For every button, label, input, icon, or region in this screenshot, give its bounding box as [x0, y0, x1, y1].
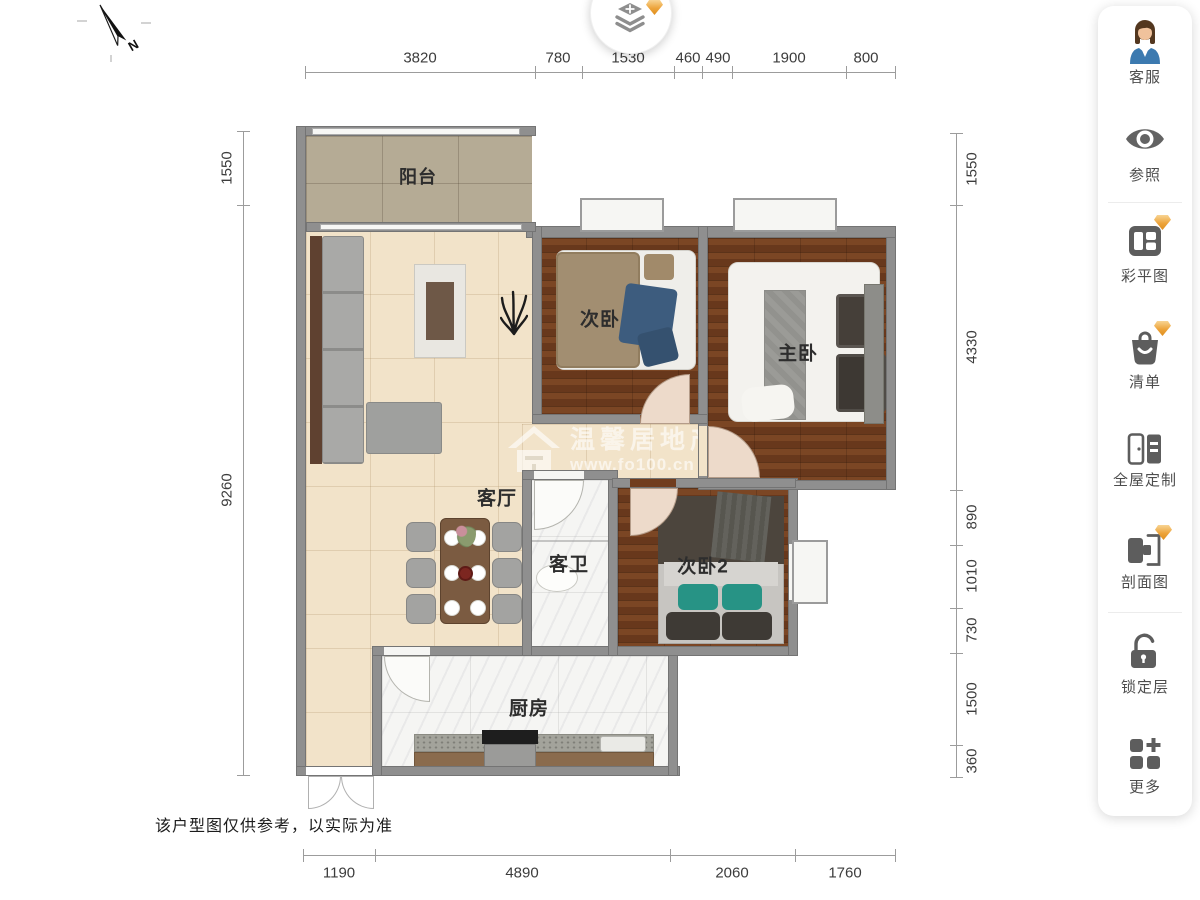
dimension-label: 800	[853, 50, 878, 67]
master-door-opening	[699, 426, 707, 476]
room-label-bathroom: 客卫	[549, 550, 589, 577]
dimension-tick	[732, 66, 733, 79]
list-bag-icon	[1127, 328, 1163, 371]
master-throw	[740, 383, 795, 422]
dimension-tick	[670, 849, 671, 862]
sofa-chaise	[366, 402, 442, 454]
watermark: 温馨居地产 www.fo100.cn	[508, 426, 720, 474]
entrance-opening	[306, 767, 374, 775]
dimension-label: 1190	[323, 865, 355, 882]
dimension-tick	[237, 131, 250, 132]
wall	[296, 126, 306, 776]
wall	[372, 646, 382, 776]
room-label-master: 主卧	[778, 339, 818, 366]
dimension-label: 4330	[964, 330, 981, 363]
left-ruler-line	[243, 131, 244, 775]
dimension-tick	[950, 653, 963, 654]
dimension-tick	[950, 777, 963, 778]
plate	[470, 600, 486, 616]
dimension-label: 360	[964, 748, 981, 773]
dimension-tick	[702, 66, 703, 79]
dimension-tick	[303, 849, 304, 862]
dining-chair	[492, 522, 522, 552]
color-plan-icon	[1127, 222, 1163, 263]
dining-chair	[492, 594, 522, 624]
dimension-tick	[950, 545, 963, 546]
dimension-tick	[237, 775, 250, 776]
sidebar-item-list[interactable]	[1100, 328, 1190, 371]
master-wardrobe	[864, 284, 884, 424]
dimension-tick	[582, 66, 583, 79]
dimension-tick	[950, 205, 963, 206]
dimension-tick	[674, 66, 675, 79]
watermark-house-icon	[508, 426, 560, 474]
dimension-label: 730	[964, 617, 981, 642]
lock-layer-icon	[1127, 632, 1163, 675]
sidebar-label: 参照	[1100, 164, 1190, 185]
plate	[444, 600, 460, 616]
sofa-back	[310, 236, 322, 464]
bedroom2-pillow-teal	[722, 584, 762, 610]
top-ruler-line	[305, 72, 895, 73]
sink	[600, 736, 646, 752]
right-ruler-line	[956, 133, 957, 777]
sidebar-label: 剖面图	[1100, 571, 1190, 592]
sidebar-item-custom-furniture[interactable]	[1100, 432, 1190, 471]
agent-avatar-icon	[1124, 18, 1166, 69]
coffee-table-top	[426, 282, 454, 340]
room-label-bedroom2: 次卧2	[677, 552, 729, 579]
eye-icon	[1124, 124, 1166, 159]
dining-chair	[406, 558, 436, 588]
dimension-label: 3820	[403, 50, 436, 67]
dimension-label: 490	[705, 50, 730, 67]
dimension-tick	[950, 745, 963, 746]
sidebar-item-more[interactable]	[1100, 736, 1190, 777]
room-label-balcony: 阳台	[399, 163, 437, 189]
dimension-tick	[375, 849, 376, 862]
hallway-floor	[306, 648, 372, 768]
north-arrow: N	[75, 0, 155, 64]
dimension-label: 4890	[505, 865, 538, 882]
dining-chair	[406, 594, 436, 624]
bathroom-divider	[532, 540, 608, 542]
more-grid-icon	[1127, 736, 1163, 777]
disclaimer-text: 该户型图仅供参考，以实际为准	[155, 812, 393, 836]
bedroom-window	[580, 198, 664, 232]
sidebar-item-customer-service[interactable]	[1100, 18, 1190, 69]
wall	[532, 226, 542, 424]
dimension-label: 780	[545, 50, 570, 67]
dimension-tick	[950, 490, 963, 491]
wall	[668, 650, 678, 776]
sidebar-label: 全屋定制	[1100, 469, 1190, 490]
bottom-ruler-line	[303, 855, 895, 856]
dining-chair	[492, 558, 522, 588]
master-window	[733, 198, 837, 232]
table-flowers	[452, 520, 476, 548]
dimension-tick	[237, 205, 250, 206]
dimension-tick	[535, 66, 536, 79]
bedroom2-door-opening	[630, 479, 676, 487]
north-label: N	[125, 36, 141, 54]
sidebar-label: 锁定层	[1100, 676, 1190, 697]
dimension-label: 460	[675, 50, 700, 67]
dimension-label: 1500	[964, 682, 981, 715]
plant-icon	[500, 288, 528, 336]
sidebar-divider	[1108, 202, 1182, 203]
dimension-label: 1010	[964, 559, 981, 592]
section-view-icon	[1126, 532, 1164, 573]
wall	[610, 646, 798, 656]
sidebar-label: 彩平图	[1100, 265, 1190, 286]
dimension-tick	[895, 849, 896, 862]
bedroom2-pillow-dark	[666, 612, 720, 640]
sidebar-item-lock-layer[interactable]	[1100, 632, 1190, 675]
dimension-tick	[950, 608, 963, 609]
bedroom2-pillow-dark	[722, 612, 772, 640]
bathroom-door-opening	[534, 471, 584, 479]
dimension-label: 2060	[715, 865, 748, 882]
dimension-tick	[846, 66, 847, 79]
sidebar-item-reference[interactable]	[1100, 124, 1190, 159]
floorplan-app: { "north": {"label": "N"}, "dimensions":…	[0, 0, 1200, 900]
dimension-label: 1550	[964, 152, 981, 185]
sidebar-label: 客服	[1100, 66, 1190, 87]
entrance-door-arc	[341, 776, 374, 809]
sidebar-divider	[1108, 612, 1182, 613]
wall	[522, 470, 532, 656]
wardrobe-icon	[1126, 432, 1164, 471]
add-layer-icon	[612, 2, 648, 36]
balcony-slider-window	[320, 224, 522, 230]
dimension-label: 1760	[828, 865, 861, 882]
room-label-kitchen: 厨房	[509, 694, 549, 721]
sidebar-label: 更多	[1100, 776, 1190, 797]
bedroom2-bay-window	[792, 540, 828, 604]
dimension-label: 9260	[219, 473, 236, 506]
dimension-label: 1900	[772, 50, 805, 67]
entrance-door-arc	[308, 776, 341, 809]
room-label-bedroom: 次卧	[580, 305, 620, 332]
dining-chair	[406, 522, 436, 552]
sofa	[322, 236, 364, 464]
bedroom-pillow	[644, 254, 674, 280]
dimension-tick	[895, 66, 896, 79]
dimension-label: 890	[964, 504, 981, 529]
dimension-tick	[305, 66, 306, 79]
kitchen-door-opening	[384, 647, 430, 655]
dimension-tick	[795, 849, 796, 862]
sidebar-item-section-view[interactable]	[1100, 532, 1190, 573]
wall	[608, 470, 618, 656]
room-label-living: 客厅	[477, 484, 517, 511]
wall	[886, 228, 896, 490]
dimension-tick	[950, 133, 963, 134]
table-bowl	[458, 566, 473, 581]
sidebar-item-color-plan[interactable]	[1100, 222, 1190, 263]
dimension-label: 1550	[219, 151, 236, 184]
balcony-window	[312, 128, 520, 135]
sidebar-label: 清单	[1100, 371, 1190, 392]
bedroom2-pillow-teal	[678, 584, 718, 610]
stove	[482, 730, 538, 744]
